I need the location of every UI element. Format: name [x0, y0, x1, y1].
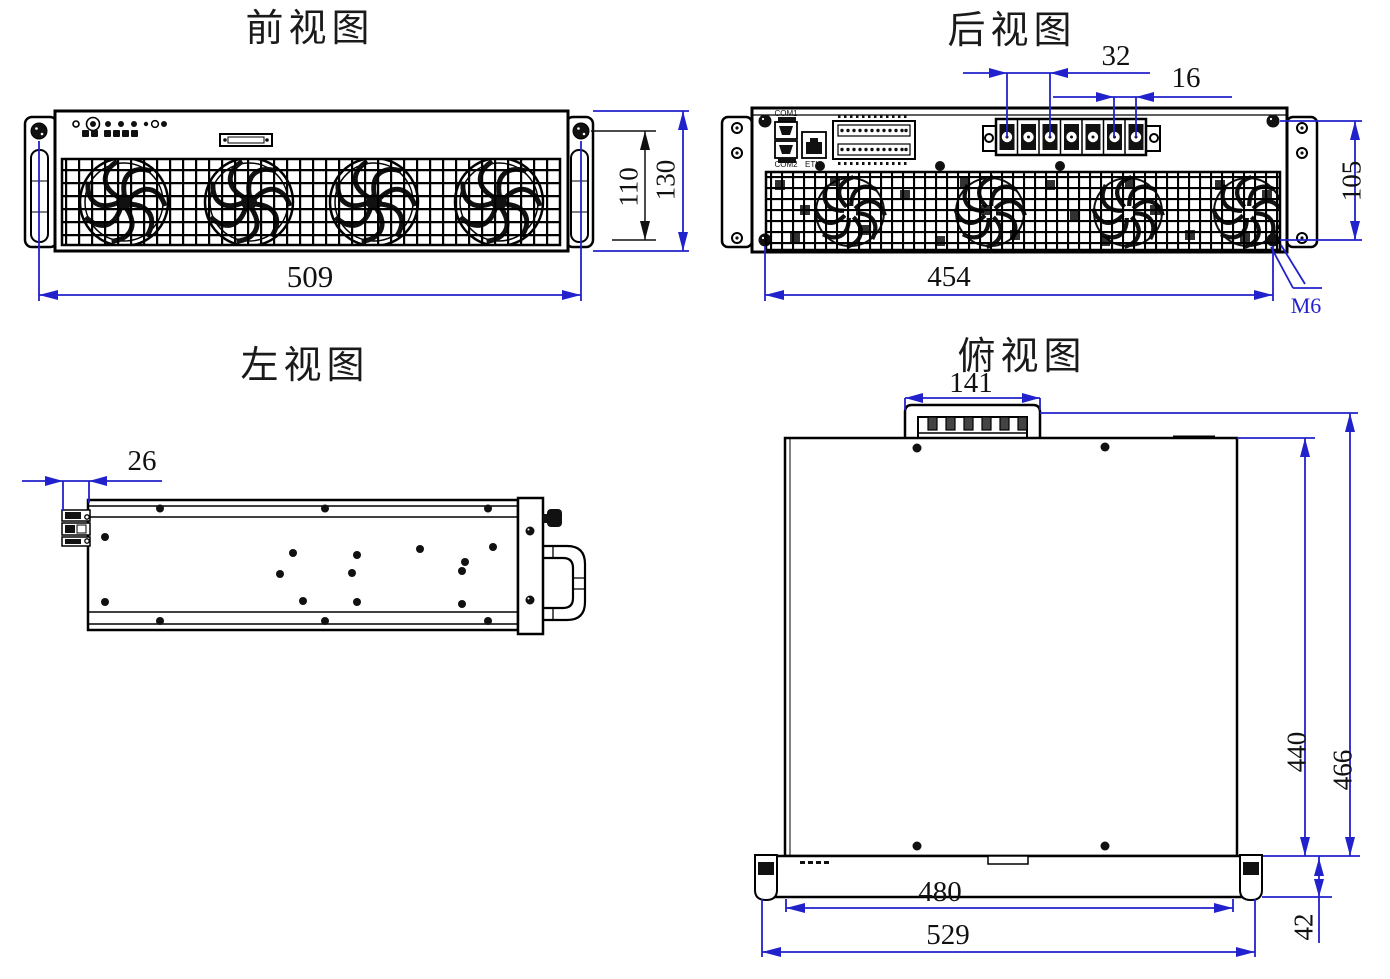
dim-label-529: 529 — [926, 921, 970, 950]
dim-label-509: 509 — [287, 261, 334, 292]
left-thumbscrew-knob — [543, 509, 562, 527]
top-terminal-comb — [905, 405, 1040, 438]
port-label-com2: COM2 — [774, 161, 797, 169]
left-body — [88, 500, 518, 630]
left-view-title: 左视图 — [240, 347, 369, 385]
drawing-linework — [0, 0, 1390, 979]
dim-label-105: 105 — [1339, 161, 1366, 202]
dim-label-110: 110 — [616, 167, 643, 207]
rear-io-terminal-connector — [833, 115, 915, 165]
top-panel-notch — [988, 856, 1028, 864]
rear-left-ear — [722, 117, 752, 247]
left-view-drawing — [22, 476, 585, 634]
front-name-plate — [220, 134, 272, 146]
dim-label-480: 480 — [918, 878, 962, 907]
front-view-drawing — [25, 111, 689, 301]
dim-label-m6: M6 — [1291, 295, 1322, 317]
dim-label-454: 454 — [927, 263, 971, 292]
left-handle — [543, 546, 585, 620]
dim-label-141: 141 — [949, 369, 993, 398]
rear-right-ear — [1287, 117, 1317, 247]
dim-label-466: 466 — [1330, 750, 1357, 791]
top-view-drawing — [755, 393, 1360, 957]
port-label-com1: COM1 — [774, 110, 797, 118]
engineering-drawing-page: { "drawing": { "background": "#ffffff", … — [0, 0, 1390, 979]
dim-label-440: 440 — [1284, 732, 1311, 773]
dim-label-130: 130 — [653, 160, 680, 201]
port-label-eth: ETH — [805, 161, 821, 169]
rear-vent-mesh — [766, 172, 1280, 250]
left-rear-connector — [62, 510, 90, 546]
dim-label-42: 42 — [1291, 914, 1318, 941]
rear-view-drawing — [722, 68, 1362, 301]
front-grille-mesh — [62, 159, 560, 245]
front-view-title: 前视图 — [245, 10, 374, 48]
top-body — [785, 438, 1237, 856]
dim-label-26: 26 — [128, 447, 157, 476]
dim-label-16: 16 — [1172, 64, 1201, 93]
dim-label-32: 32 — [1102, 42, 1131, 71]
rear-power-terminal-block — [983, 119, 1160, 155]
rear-view-title: 后视图 — [947, 12, 1076, 50]
left-front-plate — [518, 498, 543, 634]
